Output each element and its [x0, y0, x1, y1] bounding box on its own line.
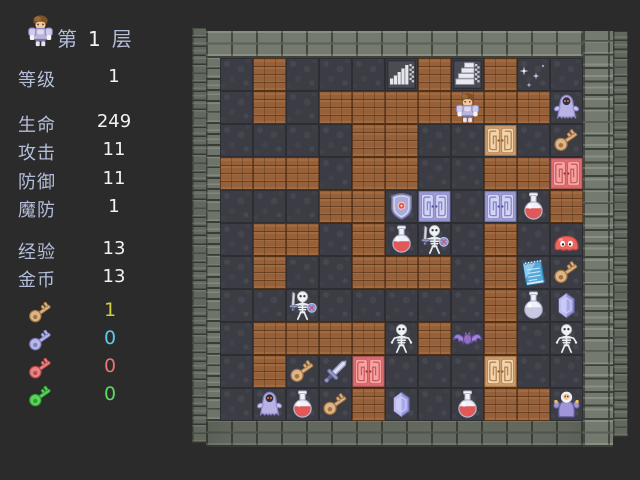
blue-key-count: 0 [88, 327, 132, 349]
floor-tile[interactable] [220, 289, 253, 322]
floor-tile[interactable] [319, 58, 352, 91]
stat-value: 11 [88, 139, 140, 160]
floor-tile[interactable] [418, 124, 451, 157]
wall-tile[interactable] [484, 157, 517, 190]
floor-tile[interactable] [286, 91, 319, 124]
wall-tile[interactable] [418, 322, 451, 355]
wall-tile[interactable] [484, 322, 517, 355]
wall-tile[interactable] [484, 223, 517, 256]
gem-blue-sprite[interactable] [385, 388, 418, 421]
floor-tile[interactable] [319, 124, 352, 157]
wall-tile[interactable] [319, 190, 352, 223]
key-yellow-sprite[interactable] [319, 388, 352, 421]
potion-red-sprite[interactable] [286, 388, 319, 421]
floor-tile[interactable] [220, 190, 253, 223]
wall-tile[interactable] [286, 322, 319, 355]
floor-tile[interactable] [451, 256, 484, 289]
key-yellow-sprite[interactable] [286, 355, 319, 388]
floor-tile[interactable] [220, 256, 253, 289]
red-key-icon [23, 353, 58, 384]
floor-tile[interactable] [517, 322, 550, 355]
floor-tile[interactable] [352, 58, 385, 91]
wall-tile[interactable] [517, 91, 550, 124]
potion-red-sprite[interactable] [385, 223, 418, 256]
floor-tile[interactable] [550, 58, 583, 91]
stat-label: 攻击 [18, 139, 56, 165]
map [192, 23, 628, 447]
stat-defense: 防御11 [18, 168, 178, 190]
floor-tile[interactable] [220, 124, 253, 157]
floor-tile[interactable] [319, 157, 352, 190]
yellow-key-count: 1 [88, 299, 132, 321]
wall-tile[interactable] [253, 256, 286, 289]
stairs-up-sprite[interactable] [451, 58, 484, 91]
green-key-icon [23, 381, 58, 412]
floor-tile[interactable] [286, 256, 319, 289]
wall-tile[interactable] [352, 91, 385, 124]
map-border-left-outer [192, 28, 206, 443]
wall-tile[interactable] [319, 322, 352, 355]
slime-red-sprite[interactable] [550, 223, 583, 256]
wall-tile[interactable] [484, 91, 517, 124]
wall-tile[interactable] [286, 223, 319, 256]
floor-tile[interactable] [253, 289, 286, 322]
floor-tile[interactable] [220, 91, 253, 124]
red-key-count: 0 [88, 355, 132, 377]
skeleton-sprite[interactable] [550, 322, 583, 355]
stat-label: 金币 [18, 266, 56, 292]
floor-tile[interactable] [352, 289, 385, 322]
wall-tile[interactable] [484, 388, 517, 421]
hero-icon [23, 11, 58, 50]
floor-tile[interactable] [418, 388, 451, 421]
wall-tile[interactable] [418, 91, 451, 124]
stat-magic-defense: 魔防1 [18, 196, 178, 218]
wall-tile[interactable] [352, 124, 385, 157]
map-border-bottom [206, 421, 583, 447]
floor-tile[interactable] [517, 355, 550, 388]
stat-value: 11 [88, 168, 140, 189]
stat-label: 等级 [18, 66, 56, 92]
wall-tile[interactable] [220, 157, 253, 190]
door-yellow-sprite[interactable] [484, 124, 517, 157]
wall-tile[interactable] [484, 256, 517, 289]
wall-tile[interactable] [253, 355, 286, 388]
wall-tile[interactable] [352, 322, 385, 355]
key-yellow-sprite[interactable] [550, 124, 583, 157]
stat-value: 13 [88, 238, 140, 259]
skeleton-sprite[interactable] [385, 322, 418, 355]
stat-label: 生命 [18, 111, 56, 137]
skeleton-warrior-sprite[interactable] [418, 223, 451, 256]
floor-tile[interactable] [418, 355, 451, 388]
wall-tile[interactable] [253, 157, 286, 190]
floor-tile[interactable] [253, 190, 286, 223]
notebook-sprite[interactable] [517, 256, 550, 289]
floor-tile[interactable] [286, 124, 319, 157]
stat-value: 1 [88, 196, 140, 217]
sidebar: 第1层 等级1生命249攻击11防御11魔防1经验13金币13 1000 [0, 0, 192, 480]
wall-tile[interactable] [484, 289, 517, 322]
floor-tile[interactable] [385, 355, 418, 388]
wall-tile[interactable] [385, 157, 418, 190]
floor-tile[interactable] [220, 58, 253, 91]
wizard-sprite[interactable] [550, 388, 583, 421]
floor-tile[interactable] [418, 157, 451, 190]
stat-value: 249 [88, 111, 140, 132]
map-border-right [583, 31, 613, 447]
floor-indicator: 第1层 [57, 23, 132, 52]
floor-tile[interactable] [451, 190, 484, 223]
stat-hp: 生命249 [18, 111, 178, 133]
floor-tile[interactable] [286, 58, 319, 91]
potion-red-sprite[interactable] [517, 190, 550, 223]
wall-tile[interactable] [352, 190, 385, 223]
hero-sprite[interactable] [451, 91, 484, 124]
floor-tile[interactable] [286, 190, 319, 223]
stat-attack: 攻击11 [18, 139, 178, 161]
door-yellow-sprite[interactable] [484, 355, 517, 388]
wall-tile[interactable] [319, 91, 352, 124]
stat-value: 1 [88, 66, 140, 87]
floor-tile[interactable] [550, 355, 583, 388]
floor-tile[interactable] [220, 322, 253, 355]
sparkle-sprite[interactable] [517, 58, 550, 91]
yellow-key-icon [23, 297, 58, 328]
map-border-left-inner [206, 31, 220, 421]
floor-tile[interactable] [517, 124, 550, 157]
floor-tile[interactable] [253, 124, 286, 157]
floor-tile[interactable] [451, 289, 484, 322]
potion-red-sprite[interactable] [451, 388, 484, 421]
floor-tile[interactable] [451, 223, 484, 256]
floor-tile[interactable] [319, 289, 352, 322]
wall-tile[interactable] [352, 223, 385, 256]
door-blue-sprite[interactable] [418, 190, 451, 223]
floor-prefix: 第 [57, 27, 77, 51]
stat-gold: 金币13 [18, 266, 178, 288]
wall-tile[interactable] [253, 58, 286, 91]
wall-tile[interactable] [385, 124, 418, 157]
floor-tile[interactable] [385, 289, 418, 322]
key-yellow-sprite[interactable] [550, 256, 583, 289]
wall-tile[interactable] [253, 91, 286, 124]
floor-tile[interactable] [220, 388, 253, 421]
door-red-sprite[interactable] [550, 157, 583, 190]
magic-tower-game: 第1层 等级1生命249攻击11防御11魔防1经验13金币13 1000 [0, 0, 640, 480]
gem-blue-sprite[interactable] [550, 289, 583, 322]
map-border-top [206, 31, 613, 58]
wall-tile[interactable] [385, 256, 418, 289]
potion-silver-sprite[interactable] [517, 289, 550, 322]
stat-label: 魔防 [18, 196, 56, 222]
blue-key-icon [23, 325, 58, 356]
wall-tile[interactable] [385, 91, 418, 124]
sword-sprite[interactable] [319, 355, 352, 388]
key-row-green-key: 0 [0, 381, 192, 413]
stat-value: 13 [88, 266, 140, 287]
door-blue-sprite[interactable] [484, 190, 517, 223]
wall-tile[interactable] [352, 388, 385, 421]
floor-suffix: 层 [112, 27, 132, 51]
wall-tile[interactable] [253, 322, 286, 355]
floor-tile[interactable] [319, 223, 352, 256]
stat-label: 经验 [18, 238, 56, 264]
stat-experience: 经验13 [18, 238, 178, 260]
stat-label: 防御 [18, 168, 56, 194]
door-red-sprite[interactable] [352, 355, 385, 388]
floor-tile[interactable] [451, 124, 484, 157]
floor-tile[interactable] [418, 289, 451, 322]
floor-tile[interactable] [319, 256, 352, 289]
wall-tile[interactable] [517, 388, 550, 421]
wall-tile[interactable] [418, 256, 451, 289]
ghost-sprite[interactable] [253, 388, 286, 421]
floor-tile[interactable] [451, 157, 484, 190]
green-key-count: 0 [88, 383, 132, 405]
ghost-sprite[interactable] [550, 91, 583, 124]
floor-number: 1 [88, 27, 101, 51]
bat-sprite[interactable] [451, 322, 484, 355]
floor-tile[interactable] [220, 355, 253, 388]
map-border-right-outer [613, 31, 628, 437]
skeleton-warrior-sprite[interactable] [286, 289, 319, 322]
wall-tile[interactable] [253, 223, 286, 256]
floor-tile[interactable] [220, 223, 253, 256]
floor-tile[interactable] [451, 355, 484, 388]
floor-tile[interactable] [517, 223, 550, 256]
wall-tile[interactable] [517, 157, 550, 190]
wall-tile[interactable] [418, 58, 451, 91]
shield-sprite[interactable] [385, 190, 418, 223]
wall-tile[interactable] [484, 58, 517, 91]
wall-tile[interactable] [352, 157, 385, 190]
wall-tile[interactable] [286, 157, 319, 190]
stat-level: 等级1 [18, 66, 178, 88]
wall-tile[interactable] [550, 190, 583, 223]
stairs-down-sprite[interactable] [385, 58, 418, 91]
wall-tile[interactable] [352, 256, 385, 289]
